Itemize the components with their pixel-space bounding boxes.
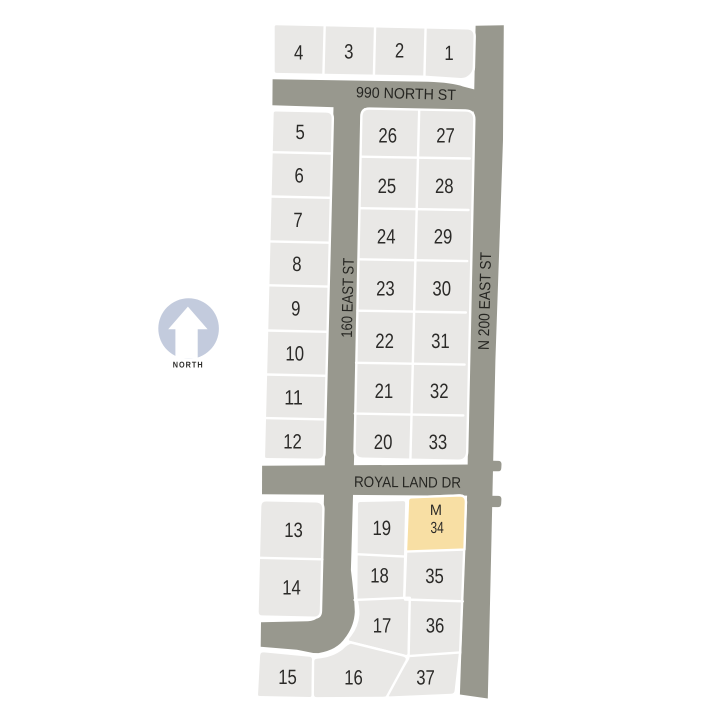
svg-text:160 EAST ST: 160 EAST ST — [339, 257, 358, 338]
svg-text:31: 31 — [431, 330, 450, 353]
svg-text:30: 30 — [432, 277, 451, 300]
svg-text:24: 24 — [377, 225, 396, 248]
svg-text:14: 14 — [282, 577, 301, 600]
svg-text:22: 22 — [375, 330, 394, 353]
svg-text:15: 15 — [278, 666, 297, 689]
svg-text:17: 17 — [373, 615, 392, 638]
svg-text:23: 23 — [376, 277, 395, 300]
svg-text:8: 8 — [292, 253, 301, 276]
svg-text:19: 19 — [373, 517, 392, 540]
svg-text:5: 5 — [296, 121, 305, 144]
svg-text:12: 12 — [283, 431, 302, 454]
svg-text:16: 16 — [344, 667, 363, 690]
svg-text:33: 33 — [429, 431, 448, 454]
svg-text:3: 3 — [344, 41, 353, 64]
svg-text:M: M — [430, 502, 442, 519]
svg-text:18: 18 — [370, 565, 389, 588]
svg-text:32: 32 — [430, 380, 449, 403]
svg-text:4: 4 — [294, 42, 303, 65]
svg-text:27: 27 — [436, 125, 455, 148]
svg-text:NORTH: NORTH — [173, 359, 204, 369]
svg-text:11: 11 — [284, 387, 303, 410]
svg-text:36: 36 — [426, 615, 445, 638]
svg-text:37: 37 — [416, 667, 435, 690]
svg-text:1: 1 — [444, 42, 453, 65]
svg-text:ROYAL LAND DR: ROYAL LAND DR — [354, 474, 461, 492]
svg-text:7: 7 — [293, 209, 302, 232]
svg-text:34: 34 — [431, 519, 444, 537]
svg-text:10: 10 — [285, 343, 304, 366]
svg-text:25: 25 — [378, 175, 397, 198]
svg-text:21: 21 — [375, 380, 394, 403]
svg-text:20: 20 — [374, 431, 393, 454]
svg-text:990 NORTH ST: 990 NORTH ST — [356, 84, 456, 104]
svg-text:28: 28 — [435, 175, 454, 198]
svg-text:35: 35 — [425, 565, 444, 588]
svg-text:N 200 EAST ST: N 200 EAST ST — [476, 251, 495, 350]
svg-text:13: 13 — [284, 519, 303, 542]
svg-text:9: 9 — [291, 298, 300, 321]
svg-text:26: 26 — [378, 125, 397, 148]
svg-text:2: 2 — [395, 40, 404, 63]
svg-text:29: 29 — [434, 225, 453, 248]
svg-text:6: 6 — [294, 165, 303, 188]
